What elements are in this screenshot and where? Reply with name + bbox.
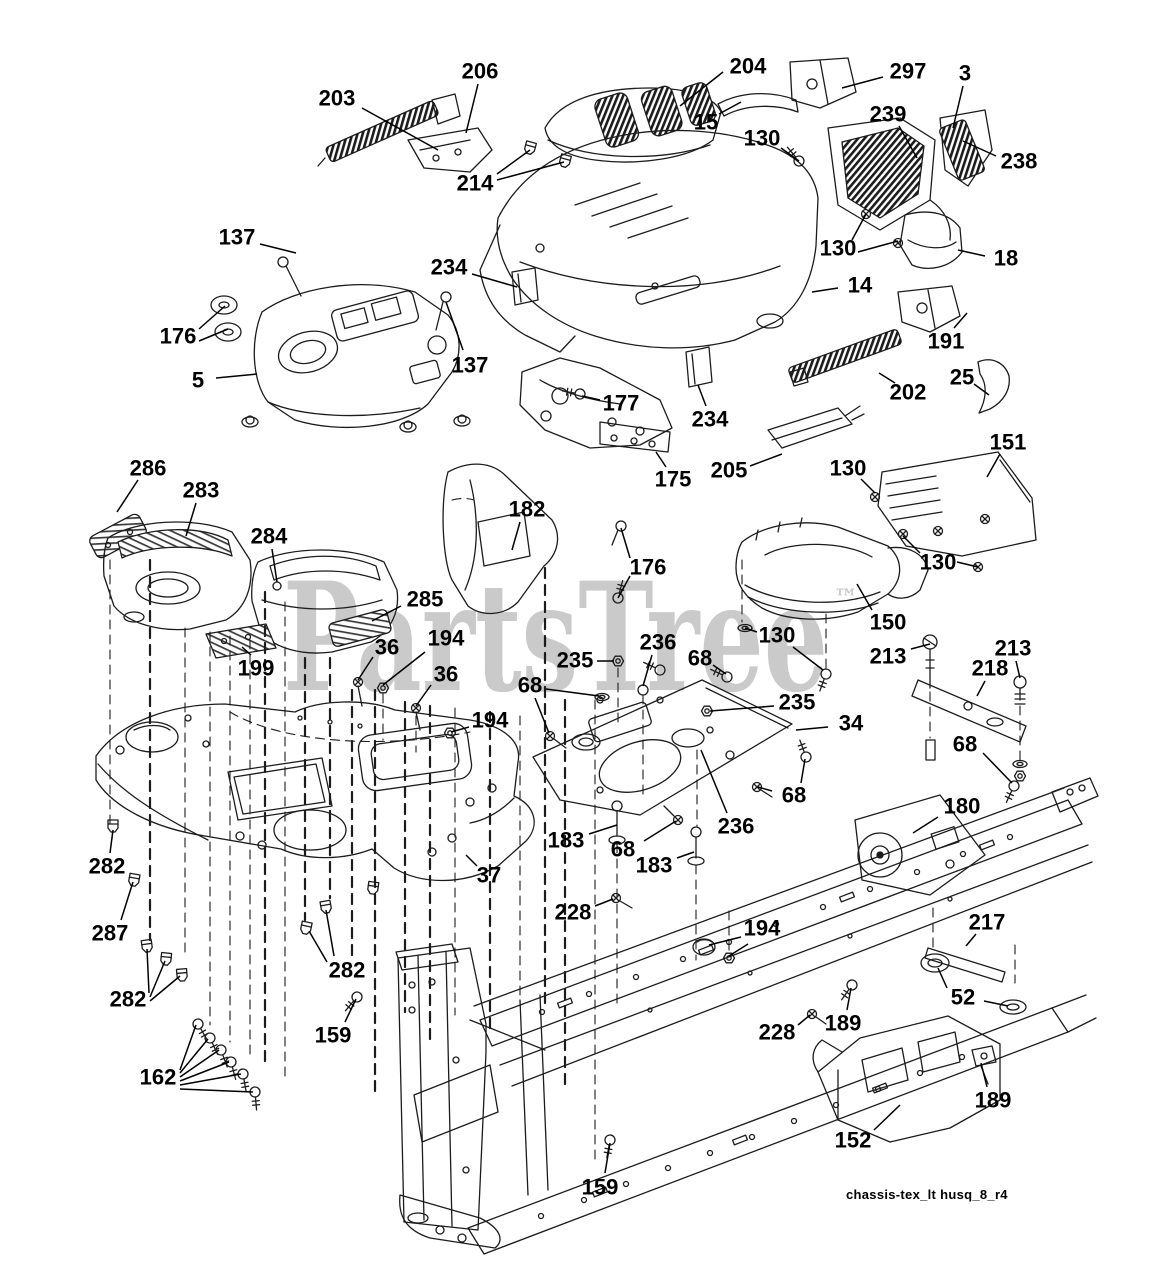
leader-line-214: [497, 162, 564, 180]
callout-183: 183: [548, 825, 617, 853]
leader-line-189: [981, 1063, 987, 1087]
part-number-68: 68: [518, 673, 542, 698]
callout-162: 162: [140, 1025, 253, 1092]
leader-line-218: [977, 681, 985, 696]
part-number-137: 137: [219, 225, 256, 250]
leader-line-287: [121, 882, 133, 920]
bracket-206-drawing: [408, 128, 492, 172]
leader-line-162: [180, 1089, 253, 1092]
part-number-203: 203: [319, 86, 356, 111]
leader-line-137: [260, 244, 296, 253]
leader-line-191: [954, 313, 967, 328]
part-number-130: 130: [820, 236, 857, 261]
part-number-282: 282: [110, 987, 147, 1012]
part-number-130: 130: [920, 550, 957, 575]
leader-line-228: [595, 899, 613, 906]
plate-234-right-drawing: [686, 347, 712, 387]
part-number-194: 194: [472, 708, 509, 733]
channel-205-drawing: [768, 406, 864, 448]
part-number-287: 287: [92, 921, 129, 946]
part-number-3: 3: [959, 61, 971, 86]
part-number-194: 194: [744, 916, 781, 941]
callout-152: 152: [835, 1105, 900, 1153]
leader-line-68: [644, 821, 676, 841]
part-number-68: 68: [688, 646, 712, 671]
leader-line-214: [497, 150, 530, 174]
callout-282: 282: [110, 949, 180, 1012]
leader-line-228: [798, 1015, 810, 1025]
leader-line-68: [983, 753, 1012, 783]
leader-line-282: [326, 910, 334, 956]
callout-218: 218: [972, 656, 1009, 697]
callout-137: 137: [219, 225, 296, 254]
clamp-189-bottom: [972, 1046, 996, 1084]
callout-228: 228: [555, 899, 613, 925]
part-number-286: 286: [130, 456, 167, 481]
callout-286: 286: [117, 456, 166, 513]
leader-line-182: [512, 522, 520, 550]
leader-line-15: [719, 102, 741, 114]
part-number-36: 36: [434, 662, 458, 687]
part-number-159: 159: [582, 1175, 619, 1200]
leader-line-130: [861, 479, 875, 493]
leader-line-194: [709, 937, 741, 945]
part-number-5: 5: [192, 368, 204, 393]
part-number-283: 283: [183, 478, 220, 503]
part-number-180: 180: [944, 794, 981, 819]
callout-130: 130: [744, 126, 799, 162]
part-number-36: 36: [375, 635, 399, 660]
leader-line-282: [150, 976, 180, 1001]
callout-14: 14: [812, 273, 873, 298]
callout-68: 68: [953, 732, 1012, 784]
leader-line-34: [796, 727, 828, 730]
part-number-183: 183: [636, 853, 673, 878]
part-number-137: 137: [452, 353, 489, 378]
bracket-175-drawing: [520, 358, 672, 452]
part-number-236: 236: [718, 814, 755, 839]
part-number-199: 199: [238, 656, 275, 681]
callout-205: 205: [711, 454, 782, 483]
callout-68: 68: [758, 759, 806, 808]
callout-137: 137: [446, 302, 488, 378]
leader-line-14: [812, 288, 838, 292]
part-number-189: 189: [975, 1088, 1012, 1113]
callout-130: 130: [830, 456, 875, 494]
part-number-202: 202: [890, 380, 927, 405]
part-number-214: 214: [457, 171, 494, 196]
callout-150: 150: [857, 584, 906, 635]
part-number-194: 194: [428, 626, 465, 651]
part-number-14: 14: [848, 273, 873, 298]
callout-206: 206: [462, 59, 499, 134]
part-number-236: 236: [640, 630, 677, 655]
leader-line-159: [605, 1143, 610, 1173]
part-number-182: 182: [509, 497, 546, 522]
callout-217: 217: [966, 910, 1005, 947]
callout-37: 37: [466, 855, 501, 888]
part-number-52: 52: [951, 985, 975, 1010]
part-number-68: 68: [782, 783, 806, 808]
part-number-130: 130: [744, 126, 781, 151]
part-number-175: 175: [655, 467, 692, 492]
part-number-297: 297: [890, 59, 927, 84]
leader-line-205: [750, 454, 782, 466]
callout-177: 177: [582, 391, 639, 416]
part-number-234: 234: [692, 407, 729, 432]
callout-234: 234: [431, 255, 517, 288]
leader-line-282: [110, 830, 113, 853]
console-5-drawing: [211, 257, 470, 432]
part-number-282: 282: [329, 958, 366, 983]
part-number-228: 228: [759, 1020, 796, 1045]
leader-line-162: [180, 1074, 241, 1085]
hook-bracket-25-drawing: [978, 360, 1009, 413]
leader-line-151: [987, 454, 1000, 477]
callout-282: 282: [309, 910, 365, 983]
part-number-150: 150: [870, 610, 907, 635]
leader-line-194: [729, 944, 748, 956]
leader-line-152: [874, 1105, 900, 1130]
part-number-18: 18: [994, 246, 1018, 271]
diagram-caption: chassis-tex_lt husq_8_r4: [846, 1187, 1008, 1202]
part-number-68: 68: [611, 837, 635, 862]
callout-236: 236: [701, 750, 754, 839]
callout-213: 213: [870, 644, 930, 669]
callout-234: 234: [692, 385, 729, 432]
leader-line-68: [801, 759, 805, 783]
part-number-176: 176: [160, 324, 197, 349]
callout-182: 182: [509, 497, 546, 551]
leader-line-180: [913, 817, 938, 833]
callout-194: 194: [709, 916, 781, 957]
leader-line-217: [966, 934, 976, 946]
leader-line-130: [858, 241, 898, 252]
part-number-162: 162: [140, 1065, 177, 1090]
leader-line-183: [589, 825, 617, 834]
frame-front-drawing: [396, 944, 548, 1248]
part-number-204: 204: [730, 54, 767, 79]
trim-strip-15-drawing: [718, 94, 798, 116]
part-number-34: 34: [839, 711, 864, 736]
leader-line-137: [446, 302, 463, 350]
leader-line-286: [117, 480, 138, 512]
part-number-183: 183: [548, 828, 585, 853]
callout-18: 18: [958, 246, 1018, 271]
part-number-238: 238: [1001, 149, 1038, 174]
part-number-228: 228: [555, 900, 592, 925]
leader-line-175: [656, 452, 666, 467]
part-number-213: 213: [995, 636, 1032, 661]
box-191-drawing: [898, 286, 960, 332]
part-number-217: 217: [969, 910, 1006, 935]
part-number-68: 68: [953, 732, 977, 757]
callout-5: 5: [192, 368, 257, 393]
part-number-234: 234: [431, 255, 468, 280]
callout-159: 159: [582, 1143, 619, 1200]
leader-line-176: [199, 329, 228, 341]
callout-183: 183: [636, 852, 694, 878]
part-number-284: 284: [251, 524, 288, 549]
part-number-37: 37: [477, 863, 501, 888]
callout-3: 3: [953, 61, 971, 129]
callout-283: 283: [183, 478, 220, 537]
leader-line-282: [309, 931, 327, 962]
callout-175: 175: [655, 452, 692, 492]
leader-line-236: [701, 750, 727, 813]
callout-287: 287: [92, 882, 133, 946]
dash-tower-239-drawing: [828, 110, 992, 240]
part-number-285: 285: [407, 587, 444, 612]
box-297-drawing: [790, 58, 856, 108]
callout-52: 52: [938, 968, 1008, 1010]
leader-line-282: [147, 949, 149, 993]
leader-line-282: [150, 961, 165, 997]
part-number-15: 15: [694, 110, 718, 135]
part-number-206: 206: [462, 59, 499, 84]
part-number-205: 205: [711, 458, 748, 483]
callout-189: 189: [975, 1063, 1012, 1113]
leader-line-5: [216, 374, 257, 378]
cover-283-drawing: [104, 522, 251, 630]
callout-130: 130: [820, 214, 898, 261]
fender-deck-37-drawing: [96, 702, 534, 881]
callout-282: 282: [89, 830, 126, 879]
watermark-tm-icon: ™: [834, 583, 858, 612]
parts-diagram-page: PartsTree ™: [0, 0, 1149, 1280]
part-number-235: 235: [779, 690, 816, 715]
part-number-235: 235: [557, 648, 594, 673]
part-number-130: 130: [830, 456, 867, 481]
leader-line-297: [842, 77, 883, 88]
part-number-191: 191: [928, 329, 965, 354]
part-number-177: 177: [603, 391, 640, 416]
leader-line-213: [1016, 661, 1020, 678]
leader-line-234: [698, 385, 706, 406]
part-number-25: 25: [950, 365, 974, 390]
part-number-176: 176: [630, 555, 667, 580]
part-number-189: 189: [825, 1011, 862, 1036]
callout-214: 214: [457, 150, 564, 196]
part-number-152: 152: [835, 1128, 872, 1153]
leader-line-206: [466, 84, 478, 133]
part-number-159: 159: [315, 1023, 352, 1048]
part-number-213: 213: [870, 644, 907, 669]
leader-line-37: [466, 855, 477, 866]
callout-228: 228: [759, 1015, 810, 1045]
part-number-130: 130: [759, 623, 796, 648]
part-number-151: 151: [990, 430, 1027, 455]
leader-line-150: [857, 584, 872, 610]
leader-line-25: [974, 384, 989, 395]
chassis-exploded-diagram: PartsTree ™: [0, 0, 1149, 1280]
side-panel-18-drawing: [900, 212, 962, 268]
part-number-239: 239: [870, 102, 907, 127]
callout-202: 202: [879, 373, 926, 405]
part-number-282: 282: [89, 854, 126, 879]
